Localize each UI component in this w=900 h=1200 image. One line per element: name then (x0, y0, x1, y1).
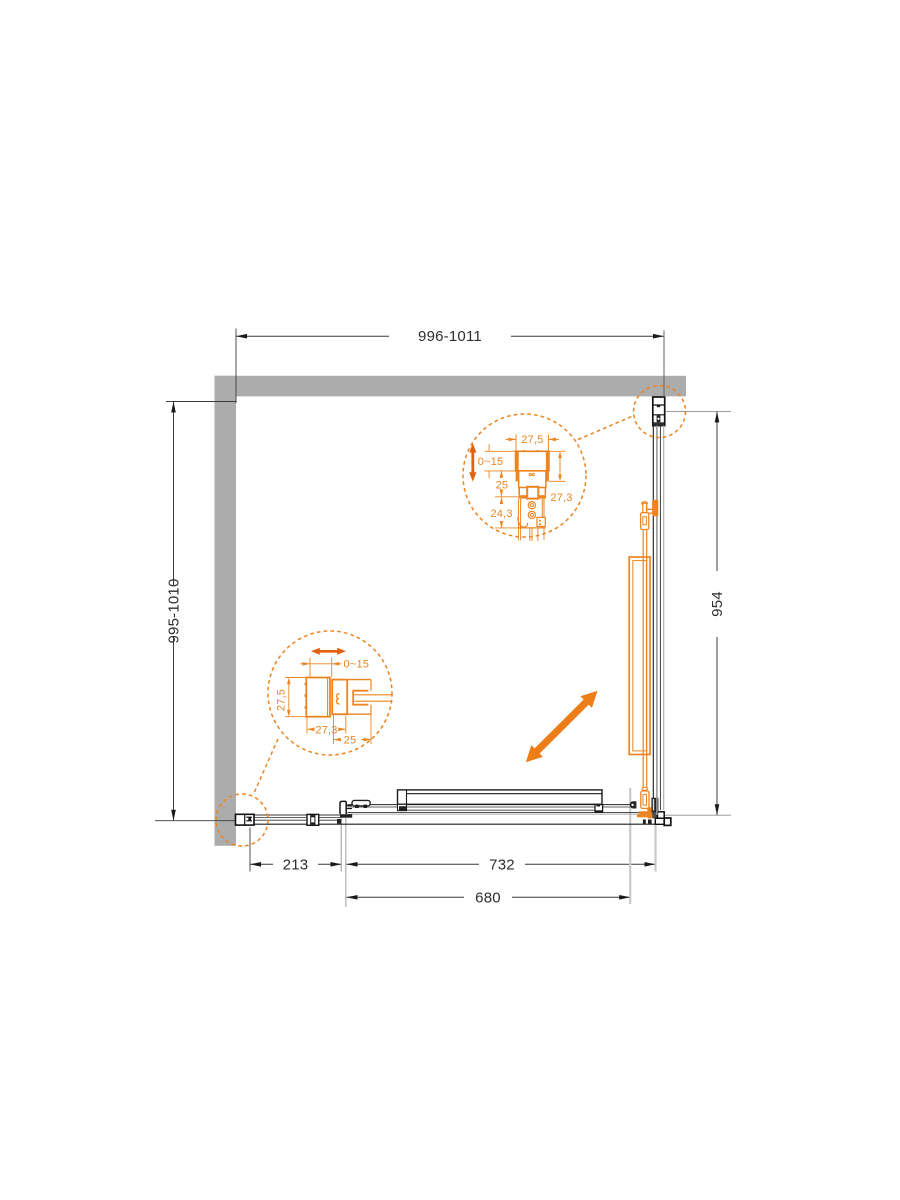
svg-text:25: 25 (344, 734, 357, 746)
svg-text:995-1010: 995-1010 (166, 579, 183, 644)
svg-text:27,5: 27,5 (275, 689, 287, 711)
svg-text:24,3: 24,3 (490, 508, 512, 520)
svg-text:27,5: 27,5 (521, 434, 543, 446)
svg-text:0~15: 0~15 (478, 456, 504, 468)
svg-text:680: 680 (475, 889, 501, 906)
svg-text:954: 954 (709, 591, 726, 617)
svg-text:996-1011: 996-1011 (418, 328, 482, 345)
svg-text:213: 213 (283, 856, 309, 873)
svg-text:27,3: 27,3 (550, 492, 572, 504)
svg-text:25: 25 (496, 479, 509, 491)
svg-text:732: 732 (489, 856, 515, 873)
svg-text:0~15: 0~15 (344, 658, 370, 670)
svg-text:27,3: 27,3 (315, 725, 337, 737)
